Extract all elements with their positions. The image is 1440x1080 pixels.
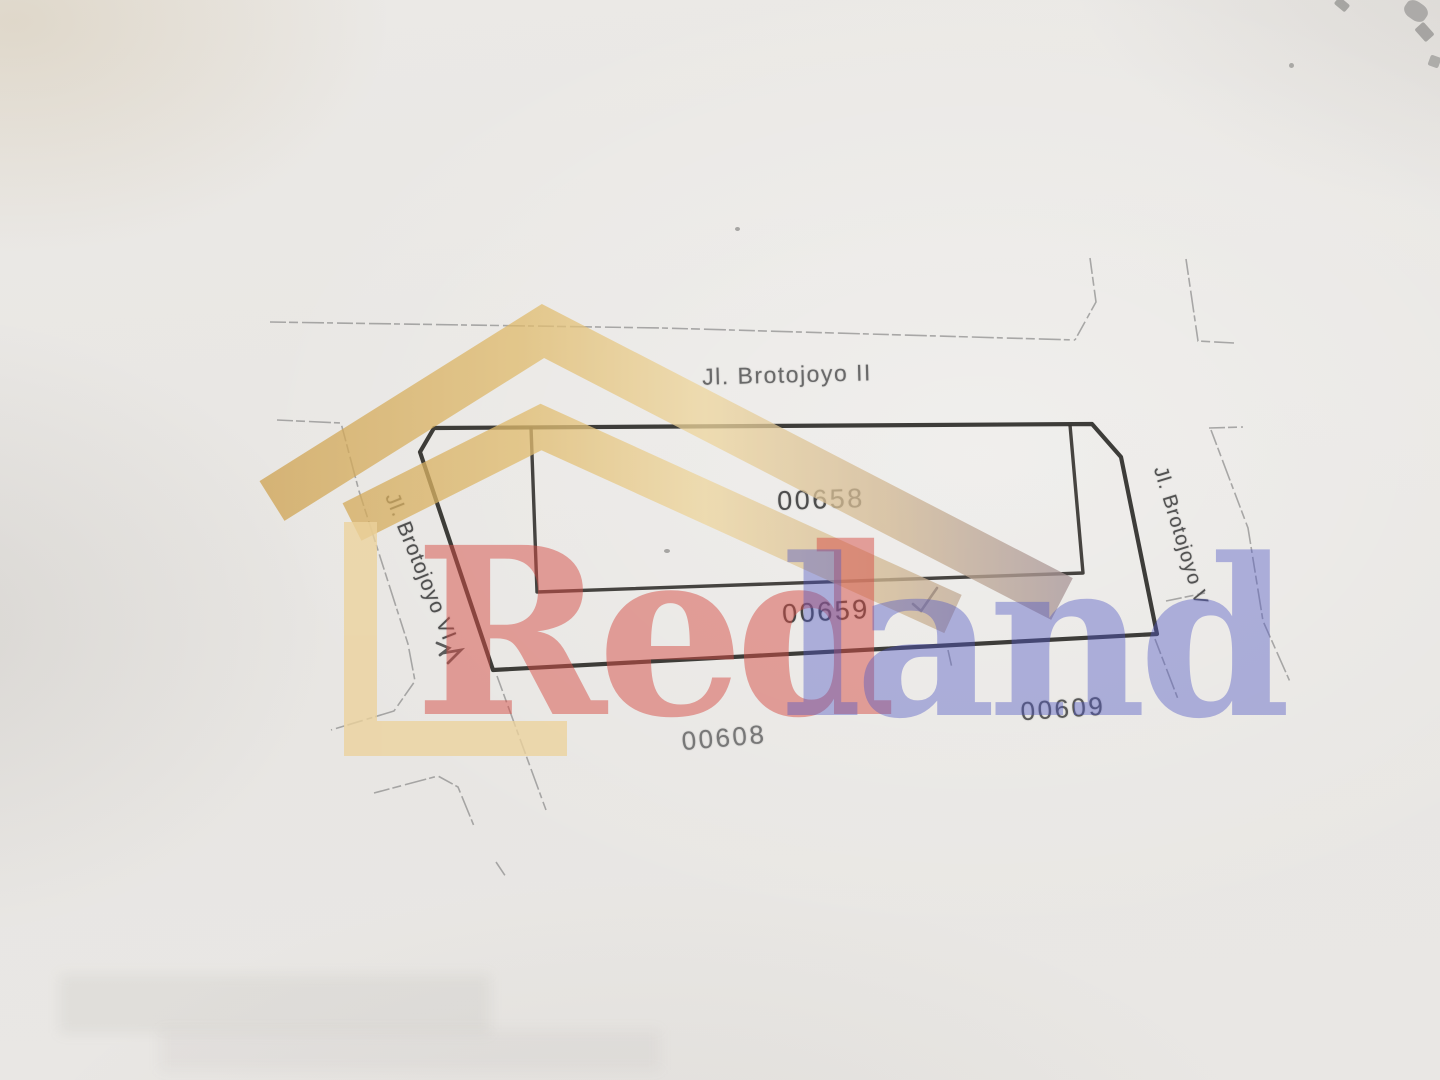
scanned-cadastral-map-photo: Jl. Brotojoyo II Jl. Brotojoyo V Jl. Bro… [0, 0, 1440, 1080]
corner-bracket-icon [344, 522, 377, 756]
watermark-word-land: land [780, 530, 1283, 748]
